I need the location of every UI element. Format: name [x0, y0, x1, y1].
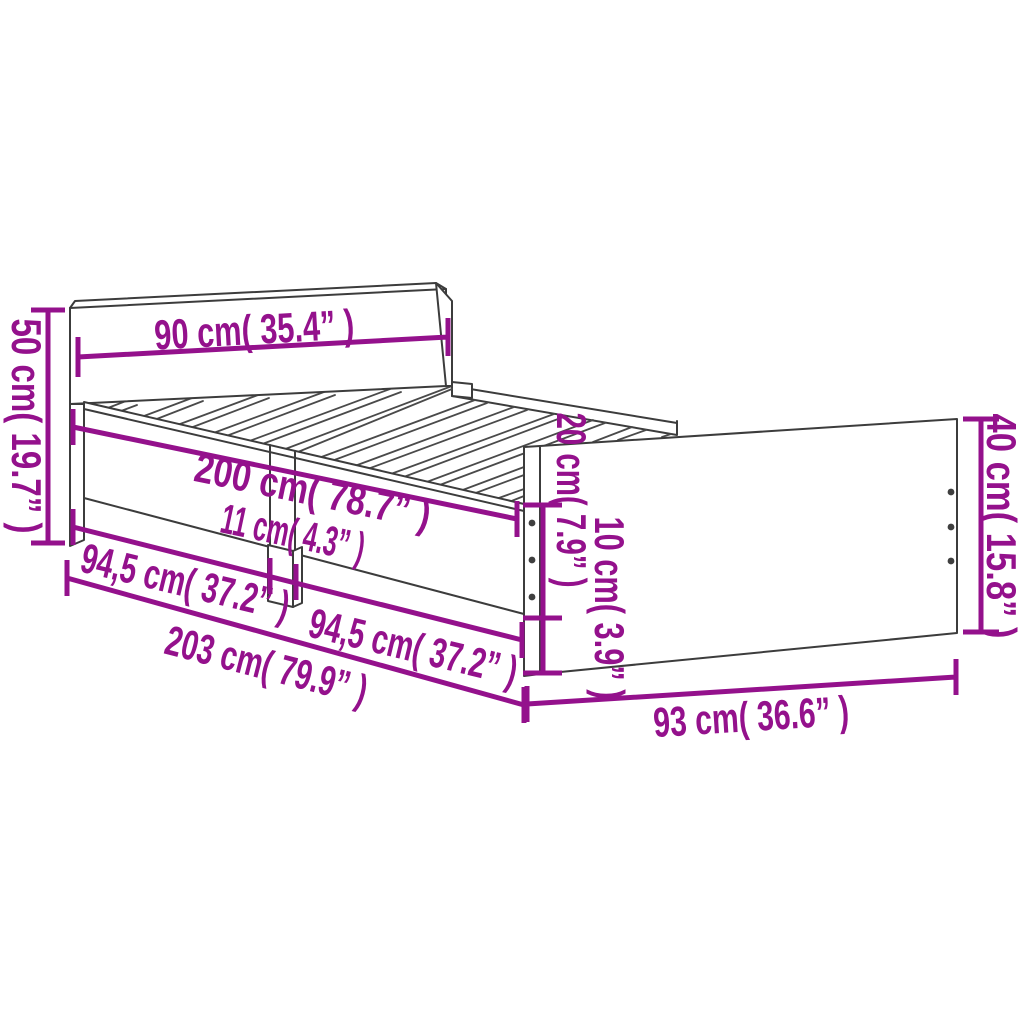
- footboard-screw: [948, 524, 955, 531]
- footboard-screw: [948, 558, 955, 565]
- footboard-screw: [529, 594, 536, 601]
- bed-frame-dimension-diagram: 90 cm( 35.4” ) 50 cm( 19.7” ) 200 cm( 78…: [0, 0, 1024, 1024]
- diagram-canvas: 90 cm( 35.4” ) 50 cm( 19.7” ) 200 cm( 78…: [0, 0, 1024, 1024]
- dimension-label: 50 cm( 19.7” ): [3, 319, 50, 534]
- dimension-label-leg-height: 10 cm( 3.9” ): [586, 517, 633, 700]
- far-rail-headboard-cap: [452, 382, 472, 398]
- dimension-headboard-height: 50 cm( 19.7” ): [3, 310, 65, 543]
- footboard-screw: [529, 557, 536, 564]
- dimension-label: 40 cm( 15.8” ): [978, 414, 1024, 639]
- dimension-footboard-height: 40 cm( 15.8” ): [963, 414, 1024, 639]
- footboard-screw: [529, 520, 536, 527]
- footboard-screw: [948, 489, 955, 496]
